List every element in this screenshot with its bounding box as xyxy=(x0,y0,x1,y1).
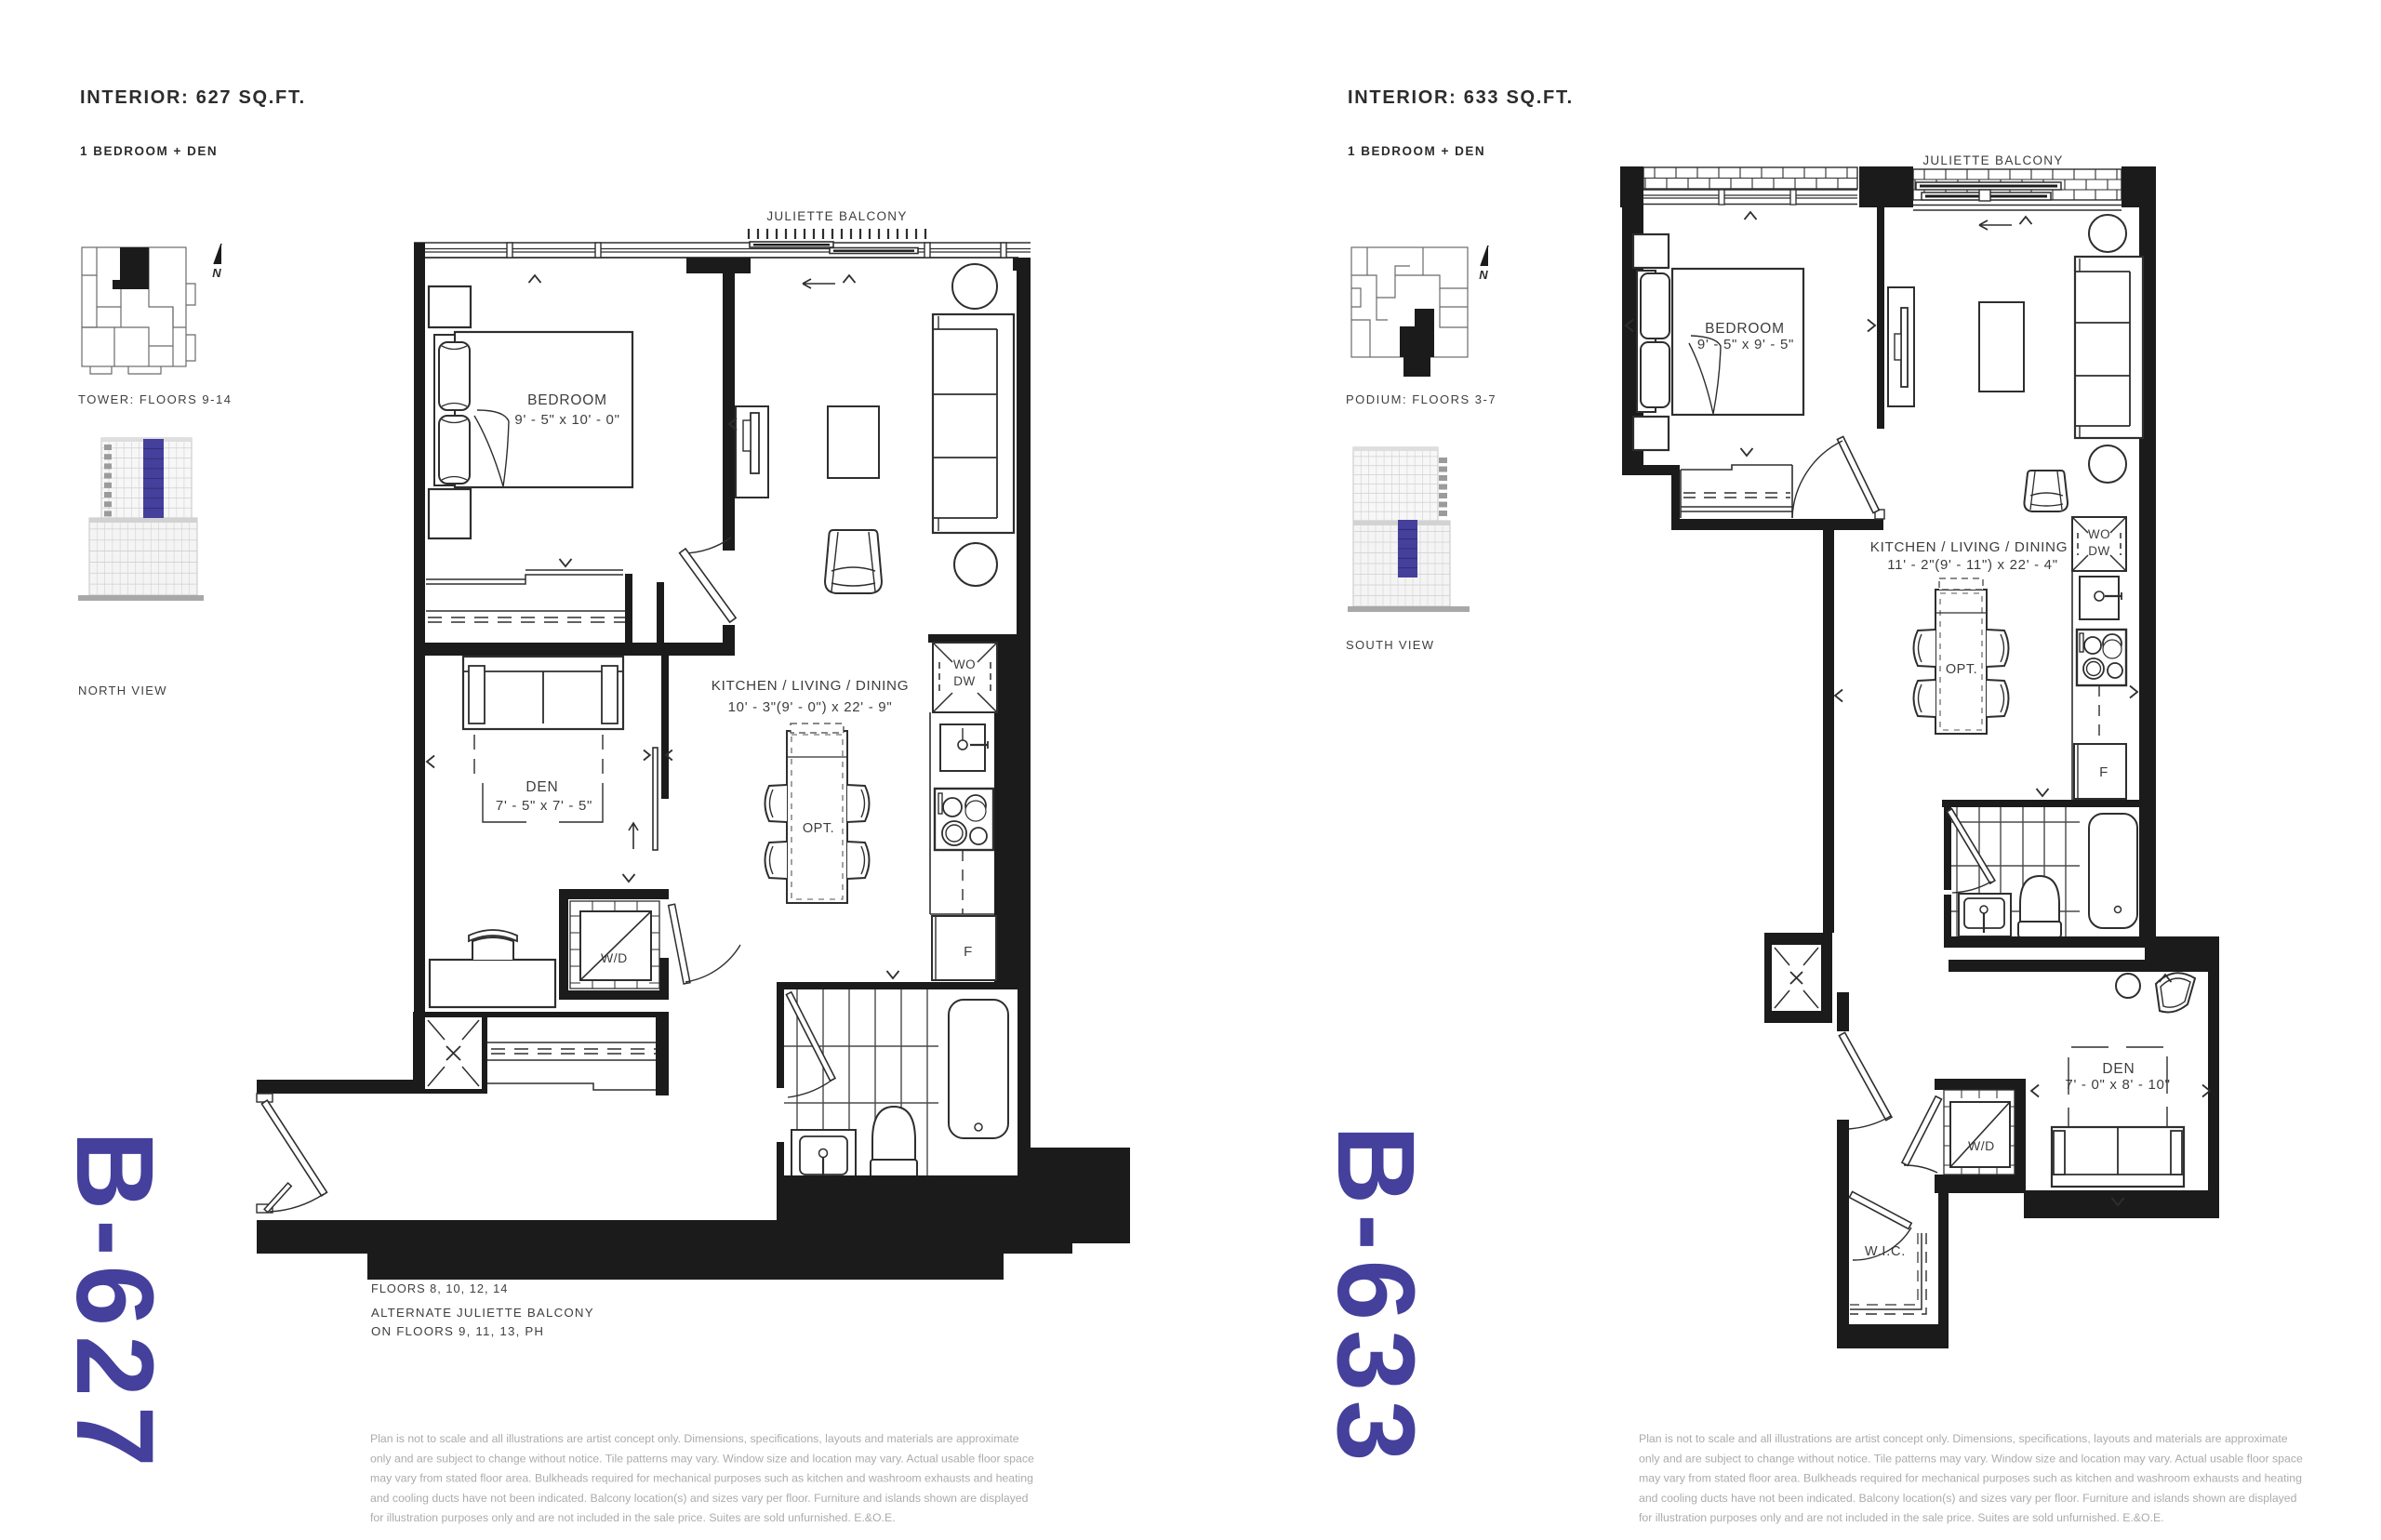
svg-text:DW: DW xyxy=(953,674,976,688)
svg-text:N: N xyxy=(1479,268,1488,282)
svg-text:ON FLOORS 9, 11, 13, PH: ON FLOORS 9, 11, 13, PH xyxy=(371,1324,544,1338)
svg-text:and cooling ducts have not bee: and cooling ducts have not been indicate… xyxy=(370,1492,1029,1505)
svg-text:F: F xyxy=(2099,764,2108,780)
svg-text:NORTH VIEW: NORTH VIEW xyxy=(78,684,167,697)
svg-text:SOUTH VIEW: SOUTH VIEW xyxy=(1346,638,1434,652)
svg-text:KITCHEN / LIVING / DINING: KITCHEN / LIVING / DINING xyxy=(1870,539,2068,555)
svg-text:W/D: W/D xyxy=(1968,1138,1995,1153)
svg-text:only and are subject to change: only and are subject to change without n… xyxy=(370,1452,1034,1465)
svg-text:Plan is not to scale and all i: Plan is not to scale and all illustratio… xyxy=(370,1432,1019,1445)
svg-text:W/D: W/D xyxy=(601,950,628,965)
svg-text:9' - 5" x 9' - 5": 9' - 5" x 9' - 5" xyxy=(1697,337,1794,352)
svg-text:BEDROOM: BEDROOM xyxy=(1705,321,1785,337)
svg-text:BEDROOM: BEDROOM xyxy=(527,392,607,408)
svg-text:may vary from stated floor are: may vary from stated floor area. Bulkhea… xyxy=(1639,1472,2302,1485)
svg-text:WO: WO xyxy=(953,657,976,671)
svg-text:and cooling ducts have not bee: and cooling ducts have not been indicate… xyxy=(1639,1492,2297,1505)
svg-text:for illustration purposes only: for illustration purposes only and are n… xyxy=(1639,1511,2164,1524)
svg-text:INTERIOR: 633 SQ.FT.: INTERIOR: 633 SQ.FT. xyxy=(1348,87,1574,108)
svg-text:OPT.: OPT. xyxy=(803,821,834,836)
svg-text:DW: DW xyxy=(2088,544,2110,558)
svg-text:JULIETTE BALCONY: JULIETTE BALCONY xyxy=(766,209,907,223)
svg-text:10' - 3"(9' - 0") x 22' - 9": 10' - 3"(9' - 0") x 22' - 9" xyxy=(728,699,893,715)
svg-text:Plan is not to scale and all i: Plan is not to scale and all illustratio… xyxy=(1639,1432,2288,1445)
svg-text:9' - 5" x 10' - 0": 9' - 5" x 10' - 0" xyxy=(514,412,619,428)
svg-text:OPT.: OPT. xyxy=(1946,662,1977,677)
svg-text:B-633: B-633 xyxy=(1314,1125,1437,1470)
svg-text:W.I.C.: W.I.C. xyxy=(1865,1244,1906,1259)
svg-text:TOWER: FLOORS 9-14: TOWER: FLOORS 9-14 xyxy=(78,392,232,406)
svg-text:may vary from stated floor are: may vary from stated floor area. Bulkhea… xyxy=(370,1472,1033,1485)
svg-text:ALTERNATE JULIETTE BALCONY: ALTERNATE JULIETTE BALCONY xyxy=(371,1306,594,1320)
svg-text:INTERIOR: 627 SQ.FT.: INTERIOR: 627 SQ.FT. xyxy=(80,87,306,108)
svg-text:KITCHEN / LIVING / DINING: KITCHEN / LIVING / DINING xyxy=(712,678,909,694)
svg-text:DEN: DEN xyxy=(525,779,558,795)
svg-text:only and are subject to change: only and are subject to change without n… xyxy=(1639,1452,2303,1465)
svg-text:DEN: DEN xyxy=(2102,1061,2135,1077)
svg-text:WO: WO xyxy=(2088,527,2110,541)
svg-text:B-627: B-627 xyxy=(53,1131,176,1476)
svg-text:1 BEDROOM + DEN: 1 BEDROOM + DEN xyxy=(1348,144,1485,158)
svg-text:7' - 0" x 8' - 10": 7' - 0" x 8' - 10" xyxy=(2065,1077,2170,1093)
svg-text:for illustration purposes only: for illustration purposes only and are n… xyxy=(370,1511,896,1524)
svg-text:11' - 2"(9' - 11") x 22' - 4": 11' - 2"(9' - 11") x 22' - 4" xyxy=(1887,557,2058,573)
svg-text:7' - 5" x 7' - 5": 7' - 5" x 7' - 5" xyxy=(496,798,592,814)
svg-text:F: F xyxy=(964,944,973,960)
svg-text:JULIETTE BALCONY: JULIETTE BALCONY xyxy=(1922,153,2063,167)
svg-text:PODIUM: FLOORS 3-7: PODIUM: FLOORS 3-7 xyxy=(1346,392,1496,406)
svg-text:N: N xyxy=(212,266,221,280)
svg-text:FLOORS 8, 10, 12, 14: FLOORS 8, 10, 12, 14 xyxy=(371,1281,508,1295)
svg-text:1 BEDROOM + DEN: 1 BEDROOM + DEN xyxy=(80,144,218,158)
